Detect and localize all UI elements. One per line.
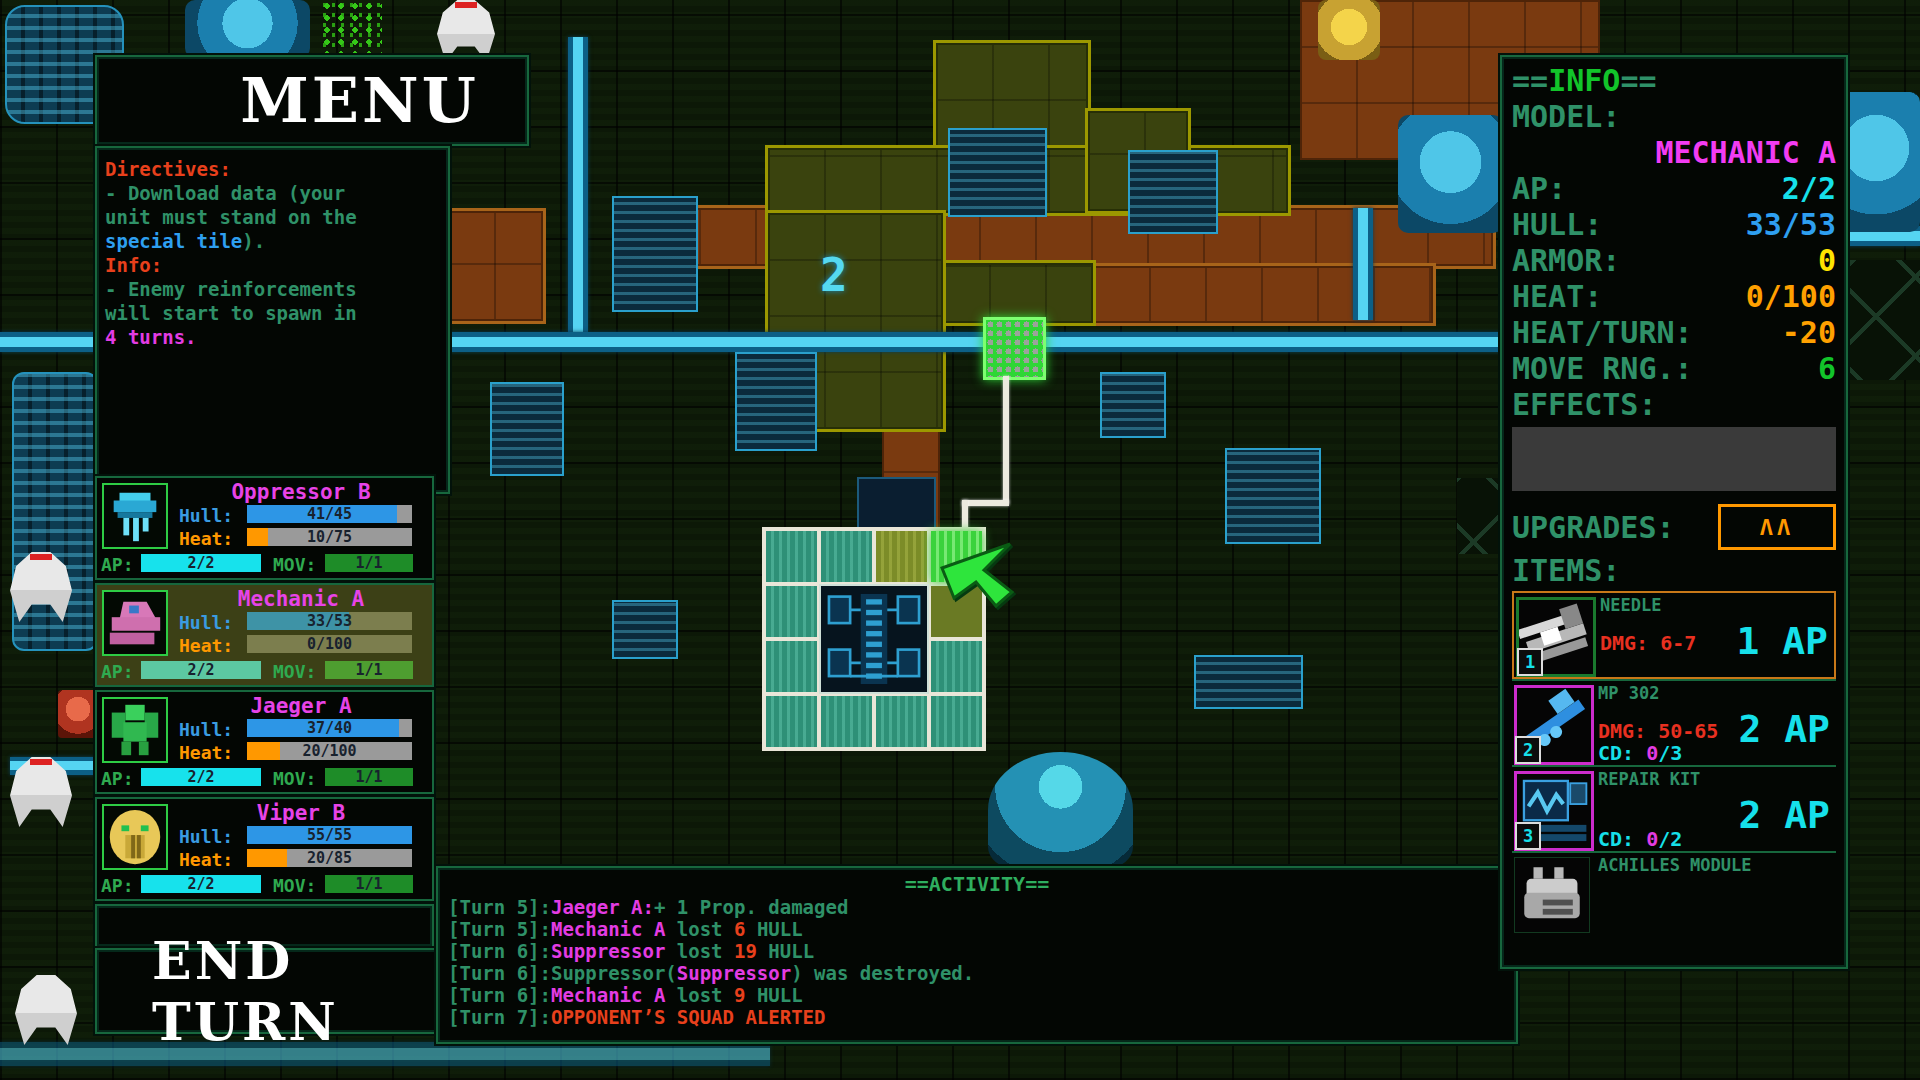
stat-label: AP: xyxy=(1512,171,1566,207)
directive-line: - Enemy reinforcements xyxy=(105,277,440,301)
drone-portrait-icon xyxy=(102,483,168,549)
items-label: ITEMS: xyxy=(1512,553,1620,589)
ap-bar: 2/2 xyxy=(141,554,261,572)
tech-panel xyxy=(1100,372,1166,438)
stat-row: HULL:33/53 xyxy=(1512,207,1836,243)
move-tile[interactable] xyxy=(766,641,817,692)
item-row-mp-302[interactable]: 2 MP 302 DMG: 50-65 CD: 0/3 2 AP xyxy=(1512,679,1836,765)
unit-name: Oppressor B xyxy=(177,480,425,504)
directives-panel: Directives:- Download data (yourunit mus… xyxy=(95,146,450,494)
corridor xyxy=(1090,263,1436,326)
ap-bar: 2/2 xyxy=(141,661,261,679)
small-unit-sprite[interactable] xyxy=(58,690,98,738)
hull-bar: 33/53 xyxy=(247,612,412,630)
activity-line: [Turn 6]:Suppressor lost 19 HULL xyxy=(448,940,1506,962)
end-turn-button[interactable]: END TURN xyxy=(95,948,489,1034)
activity-lines: [Turn 5]:Jaeger A:+ 1 Prop. damaged[Turn… xyxy=(448,896,1506,1028)
move-tile[interactable] xyxy=(766,531,817,582)
item-row-needle[interactable]: 1 NEEDLE DMG: 6-7 1 AP xyxy=(1512,591,1836,679)
upgrade-chevrons-icon: ΛΛ xyxy=(1760,515,1795,540)
truck-portrait-icon xyxy=(102,590,168,656)
menu-title: MENU xyxy=(95,55,529,146)
move-tile[interactable] xyxy=(821,696,872,747)
map-graffiti: 2 xyxy=(820,248,848,302)
unit-name: Viper B xyxy=(177,801,425,825)
item-name: ACHILLES MODULE xyxy=(1598,855,1752,875)
stat-value: -20 xyxy=(1782,315,1836,351)
activity-line: [Turn 5]:Mechanic A lost 6 HULL xyxy=(448,918,1506,940)
model-value: MECHANIC A xyxy=(1512,135,1836,171)
stat-row: ARMOR:0 xyxy=(1512,243,1836,279)
stat-label: MOVE RNG.: xyxy=(1512,351,1693,387)
yellow-unit-sprite[interactable] xyxy=(1318,0,1380,60)
rust-block xyxy=(435,208,546,324)
unit-name: Jaeger A xyxy=(177,694,425,718)
stat-label: HEAT/TURN: xyxy=(1512,315,1693,351)
directive-line: Info: xyxy=(105,253,440,277)
activity-title: ==ACTIVITY== xyxy=(448,872,1506,896)
tech-panel xyxy=(1128,150,1218,234)
stat-value: 0 xyxy=(1818,243,1836,279)
needle-item-icon: 1 xyxy=(1516,597,1596,677)
white-mech-sprite[interactable] xyxy=(15,975,77,1045)
monitor-item-icon: 3 xyxy=(1514,771,1594,851)
mech-marker xyxy=(30,554,52,560)
model-label: MODEL: xyxy=(1512,99,1836,135)
player-mech-sprite[interactable] xyxy=(821,586,927,692)
special-data-tile[interactable] xyxy=(983,317,1046,380)
stat-label: HULL: xyxy=(1512,207,1602,243)
module-item-icon xyxy=(1514,857,1590,933)
activity-line: [Turn 5]:Jaeger A:+ 1 Prop. damaged xyxy=(448,896,1506,918)
stat-value: 2/2 xyxy=(1782,171,1836,207)
move-tile[interactable] xyxy=(876,696,927,747)
activity-line: [Turn 6]:Mechanic A lost 9 HULL xyxy=(448,984,1506,1006)
stat-value: 6 xyxy=(1818,351,1836,387)
item-slot-number: 3 xyxy=(1515,822,1541,850)
hull-bar: 41/45 xyxy=(247,505,412,523)
unit-card-mechanic-a[interactable]: Mechanic A Hull: 33/53 Heat: 0/100 AP: 2… xyxy=(95,583,434,687)
heat-bar: 10/75 xyxy=(247,528,412,546)
tech-panel xyxy=(1194,655,1303,709)
item-ap-cost: 2 AP xyxy=(1738,793,1830,837)
upgrades-label: UPGRADES: xyxy=(1512,510,1675,545)
menu-title-text: MENU xyxy=(240,64,479,137)
mech-portrait-icon xyxy=(102,697,168,763)
unit-name: Mechanic A xyxy=(177,587,425,611)
stat-row: HEAT/TURN:-20 xyxy=(1512,315,1836,351)
move-tile[interactable] xyxy=(931,696,982,747)
green-debris xyxy=(320,0,382,58)
directive-line: Directives: xyxy=(105,157,440,181)
effects-box xyxy=(1512,427,1836,491)
stat-label: ARMOR: xyxy=(1512,243,1620,279)
tech-panel xyxy=(490,382,564,476)
tech-panel xyxy=(948,128,1047,217)
info-header: ==INFO== xyxy=(1512,63,1836,99)
ap-bar: 2/2 xyxy=(141,768,261,786)
unit-card-oppressor-b[interactable]: Oppressor B Hull: 41/45 Heat: 10/75 AP: … xyxy=(95,476,434,580)
map-cursor xyxy=(938,540,1016,618)
info-panel: ==INFO== MODEL: MECHANIC A AP:2/2HULL:33… xyxy=(1500,55,1848,969)
move-tile[interactable] xyxy=(766,586,817,637)
stat-rows: AP:2/2HULL:33/53ARMOR:0HEAT:0/100HEAT/TU… xyxy=(1512,171,1836,387)
item-row-achilles-module[interactable]: ACHILLES MODULE xyxy=(1512,851,1836,937)
heat-bar: 0/100 xyxy=(247,635,412,653)
effects-label: EFFECTS: xyxy=(1512,387,1657,423)
hull-bar: 55/55 xyxy=(247,826,412,844)
move-path xyxy=(1003,376,1009,504)
lion-portrait-icon xyxy=(102,804,168,870)
item-name: REPAIR KIT xyxy=(1598,769,1700,789)
item-damage: DMG: 6-7 xyxy=(1600,631,1696,655)
mov-bar: 1/1 xyxy=(325,875,413,893)
item-name: NEEDLE xyxy=(1600,595,1661,615)
directive-line: - Download data (your xyxy=(105,181,440,205)
stat-label: HEAT: xyxy=(1512,279,1602,315)
activity-line: [Turn 7]:OPPONENT’S SQUAD ALERTED xyxy=(448,1006,1506,1028)
items-list: 1 NEEDLE DMG: 6-7 1 AP 2 MP 302 DMG: 50-… xyxy=(1512,591,1836,937)
game-screen: 2 xyxy=(0,0,1920,1080)
stat-value: 0/100 xyxy=(1746,279,1836,315)
item-cooldown: CD: 0/2 xyxy=(1598,827,1682,851)
move-tile-highlight[interactable] xyxy=(876,531,927,582)
stat-value: 33/53 xyxy=(1746,207,1836,243)
stat-row: MOVE RNG.:6 xyxy=(1512,351,1836,387)
item-ap-cost: 2 AP xyxy=(1738,707,1830,751)
mov-bar: 1/1 xyxy=(325,768,413,786)
unit-card-viper-b[interactable]: Viper B Hull: 55/55 Heat: 20/85 AP: 2/2 … xyxy=(95,797,434,901)
activity-log-panel: ==ACTIVITY== [Turn 5]:Jaeger A:+ 1 Prop.… xyxy=(436,866,1518,1044)
move-tile[interactable] xyxy=(931,641,982,692)
dark-unit-sprite[interactable] xyxy=(857,477,936,533)
upgrades-slot-button[interactable]: ΛΛ xyxy=(1718,504,1836,550)
rifle-item-icon: 2 xyxy=(1514,685,1594,765)
heat-bar: 20/85 xyxy=(247,849,412,867)
directive-line: unit must stand on the xyxy=(105,205,440,229)
tech-panel xyxy=(735,352,817,451)
hull-bar: 37/40 xyxy=(247,719,412,737)
enemy-dome-unit-sprite[interactable] xyxy=(988,752,1133,868)
item-slot-number: 2 xyxy=(1515,736,1541,764)
tech-panel xyxy=(612,196,698,312)
directive-line: 4 turns. xyxy=(105,325,440,349)
enemy-apc-sprite[interactable] xyxy=(185,0,310,58)
item-name: MP 302 xyxy=(1598,683,1659,703)
tech-panel xyxy=(1225,448,1321,544)
item-row-repair-kit[interactable]: 3 REPAIR KIT CD: 0/2 2 AP xyxy=(1512,765,1836,851)
heat-bar: 20/100 xyxy=(247,742,412,760)
stat-row: HEAT:0/100 xyxy=(1512,279,1836,315)
unit-card-jaeger-a[interactable]: Jaeger A Hull: 37/40 Heat: 20/100 AP: 2/… xyxy=(95,690,434,794)
mov-bar: 1/1 xyxy=(325,661,413,679)
move-tile[interactable] xyxy=(766,696,817,747)
item-ap-cost: 1 AP xyxy=(1736,619,1828,663)
item-slot-number: 1 xyxy=(1517,648,1543,676)
white-mech-sprite[interactable] xyxy=(437,0,495,62)
mov-bar: 1/1 xyxy=(325,554,413,572)
mech-marker xyxy=(30,759,52,765)
ap-bar: 2/2 xyxy=(141,875,261,893)
stat-row: AP:2/2 xyxy=(1512,171,1836,207)
move-path xyxy=(962,500,1009,506)
directive-line: will start to spawn in xyxy=(105,301,440,325)
mech-marker xyxy=(455,2,477,8)
pipe-vertical xyxy=(568,37,588,332)
item-cooldown: CD: 0/3 xyxy=(1598,741,1682,765)
move-tile[interactable] xyxy=(821,531,872,582)
tech-panel xyxy=(612,600,678,659)
directive-line: special tile). xyxy=(105,229,440,253)
item-damage: DMG: 50-65 xyxy=(1598,719,1718,743)
pipe-vertical xyxy=(1353,208,1373,320)
drone-sprite[interactable] xyxy=(1398,115,1503,233)
activity-line: [Turn 6]:Suppressor(Suppressor) was dest… xyxy=(448,962,1506,984)
